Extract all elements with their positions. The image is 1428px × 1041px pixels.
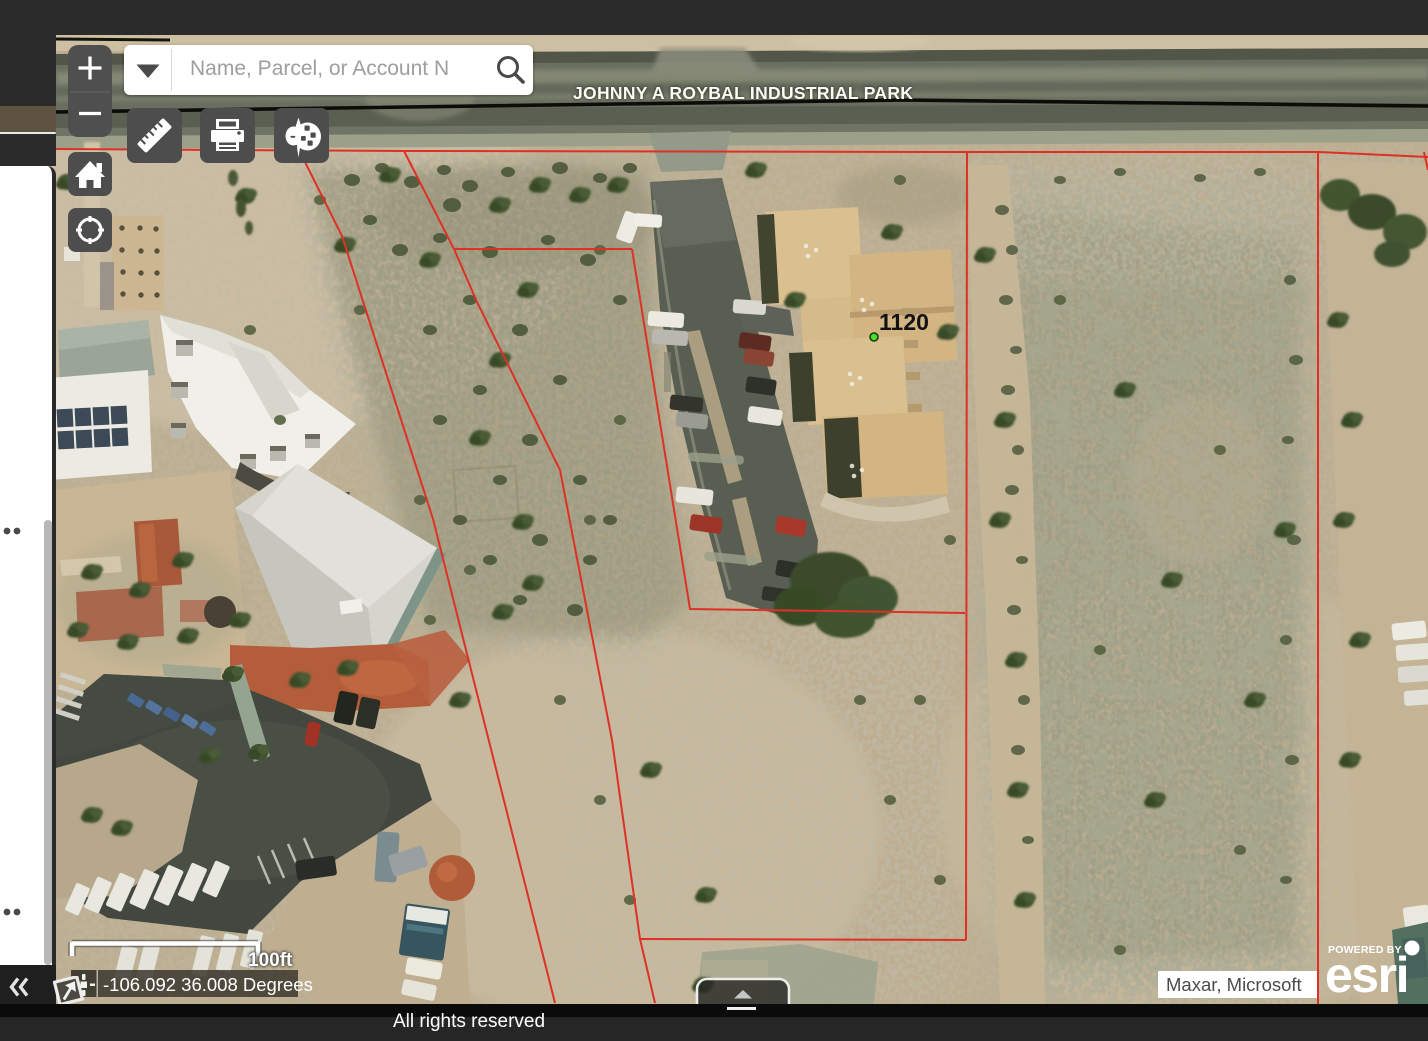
svg-text:1120: 1120 — [879, 309, 929, 335]
svg-text:100ft: 100ft — [248, 950, 293, 971]
svg-text:JOHNNY A ROYBAL INDUSTRIAL PAR: JOHNNY A ROYBAL INDUSTRIAL PARK — [573, 83, 913, 103]
svg-text:esri: esri — [1325, 947, 1408, 998]
